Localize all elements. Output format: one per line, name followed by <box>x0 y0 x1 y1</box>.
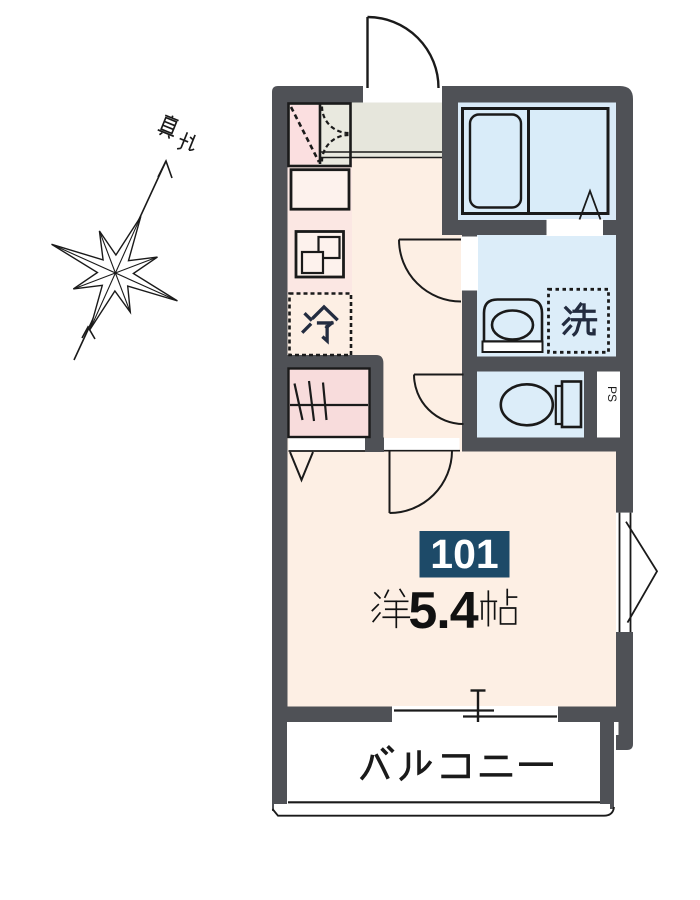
svg-text:PS: PS <box>605 386 619 402</box>
svg-text:101: 101 <box>430 531 498 577</box>
svg-text:5.4: 5.4 <box>408 582 478 640</box>
